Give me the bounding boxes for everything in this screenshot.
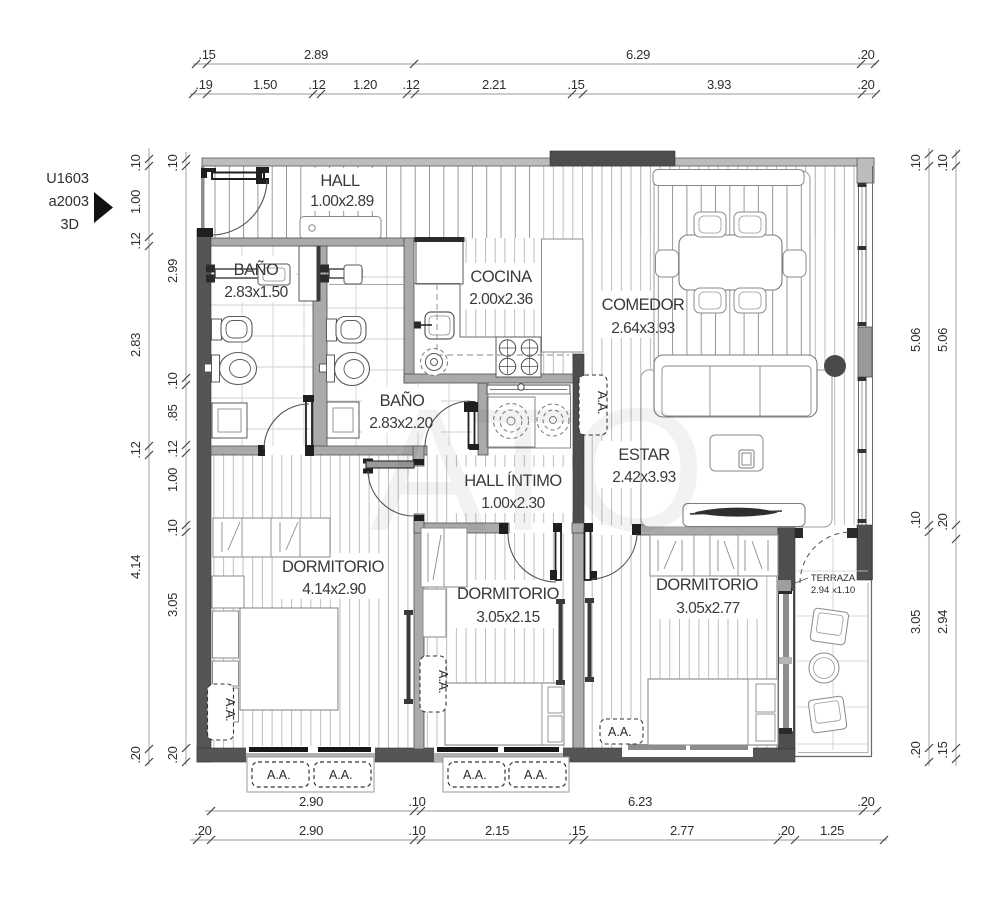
svg-text:3D: 3D	[60, 217, 79, 233]
svg-text:DORMITORIO: DORMITORIO	[282, 558, 385, 576]
svg-text:2.89: 2.89	[304, 47, 328, 62]
svg-text:4.14: 4.14	[128, 555, 143, 579]
svg-text:3.05: 3.05	[165, 593, 180, 617]
svg-text:.12: .12	[128, 441, 143, 458]
svg-text:.15: .15	[198, 47, 215, 62]
svg-text:COMEDOR: COMEDOR	[602, 296, 685, 314]
svg-text:.20: .20	[857, 47, 874, 62]
svg-text:DORMITORIO: DORMITORIO	[457, 585, 560, 603]
svg-text:.15: .15	[568, 823, 585, 838]
svg-text:2.83x2.20: 2.83x2.20	[369, 415, 433, 432]
svg-text:.12: .12	[402, 77, 419, 92]
svg-text:HALL ÍNTIMO: HALL ÍNTIMO	[464, 471, 562, 490]
svg-text:3.93: 3.93	[707, 77, 731, 92]
svg-text:.20: .20	[857, 794, 874, 809]
svg-text:BAÑO: BAÑO	[380, 390, 425, 410]
svg-text:.20: .20	[128, 746, 143, 763]
svg-text:3.05: 3.05	[908, 610, 923, 634]
svg-text:A.A.: A.A.	[267, 768, 291, 782]
svg-text:.20: .20	[777, 823, 794, 838]
svg-text:1.25: 1.25	[820, 823, 844, 838]
svg-text:2.15: 2.15	[485, 823, 509, 838]
svg-text:A.A.: A.A.	[463, 768, 487, 782]
svg-text:1.00: 1.00	[128, 190, 143, 214]
svg-text:6.29: 6.29	[626, 47, 650, 62]
svg-text:2.77: 2.77	[670, 823, 694, 838]
svg-text:.10: .10	[165, 154, 180, 171]
svg-text:.10: .10	[128, 154, 143, 171]
svg-text:a2003: a2003	[49, 194, 89, 210]
svg-text:5.06: 5.06	[935, 328, 950, 352]
svg-text:2.21: 2.21	[482, 77, 506, 92]
svg-text:COCINA: COCINA	[470, 268, 532, 286]
svg-text:.19: .19	[195, 77, 212, 92]
svg-text:.10: .10	[908, 511, 923, 528]
svg-text:BAÑO: BAÑO	[234, 259, 279, 279]
svg-text:ESTAR: ESTAR	[618, 446, 670, 464]
svg-text:.12: .12	[165, 440, 180, 457]
svg-text:.20: .20	[935, 513, 950, 530]
svg-text:2.00x2.36: 2.00x2.36	[469, 291, 533, 308]
svg-text:.10: .10	[165, 372, 180, 389]
svg-text:.85: .85	[165, 404, 180, 421]
svg-text:4.14x2.90: 4.14x2.90	[302, 581, 366, 598]
svg-text:.10: .10	[935, 154, 950, 171]
svg-text:.20: .20	[165, 746, 180, 763]
svg-text:.20: .20	[908, 741, 923, 758]
svg-text:5.06: 5.06	[908, 328, 923, 352]
svg-text:3.05x2.15: 3.05x2.15	[476, 609, 540, 626]
svg-text:.10: .10	[408, 794, 425, 809]
svg-text:.12: .12	[308, 77, 325, 92]
svg-text:DORMITORIO: DORMITORIO	[656, 576, 759, 594]
svg-text:1.00x2.30: 1.00x2.30	[481, 495, 545, 512]
svg-text:2.94: 2.94	[935, 610, 950, 634]
svg-text:.20: .20	[194, 823, 211, 838]
svg-text:.15: .15	[567, 77, 584, 92]
svg-text:1.00: 1.00	[165, 468, 180, 492]
svg-text:.12: .12	[128, 232, 143, 249]
svg-text:A.A.: A.A.	[329, 768, 353, 782]
svg-text:U1603: U1603	[46, 171, 89, 187]
svg-text:3.05x2.77: 3.05x2.77	[676, 600, 740, 617]
svg-text:A.A.: A.A.	[524, 768, 548, 782]
svg-text:1.20: 1.20	[353, 77, 377, 92]
svg-text:.10: .10	[908, 154, 923, 171]
svg-text:2.83: 2.83	[128, 333, 143, 357]
svg-text:HALL: HALL	[320, 172, 360, 190]
svg-text:A.A.: A.A.	[608, 725, 632, 739]
svg-text:2.83x1.50: 2.83x1.50	[224, 284, 288, 301]
svg-text:.15: .15	[935, 741, 950, 758]
svg-text:1.50: 1.50	[253, 77, 277, 92]
svg-text:1.00x2.89: 1.00x2.89	[310, 193, 374, 210]
svg-text:2.90: 2.90	[299, 823, 323, 838]
svg-text:2.42x3.93: 2.42x3.93	[612, 469, 676, 486]
svg-text:.20: .20	[857, 77, 874, 92]
svg-text:2.99: 2.99	[165, 259, 180, 283]
svg-text:2.90: 2.90	[299, 794, 323, 809]
svg-text:6.23: 6.23	[628, 794, 652, 809]
svg-text:.10: .10	[165, 519, 180, 536]
svg-text:2.64x3.93: 2.64x3.93	[611, 320, 675, 337]
svg-text:A.A.: A.A.	[436, 670, 450, 694]
svg-text:A.A.: A.A.	[223, 698, 237, 722]
svg-text:.10: .10	[408, 823, 425, 838]
